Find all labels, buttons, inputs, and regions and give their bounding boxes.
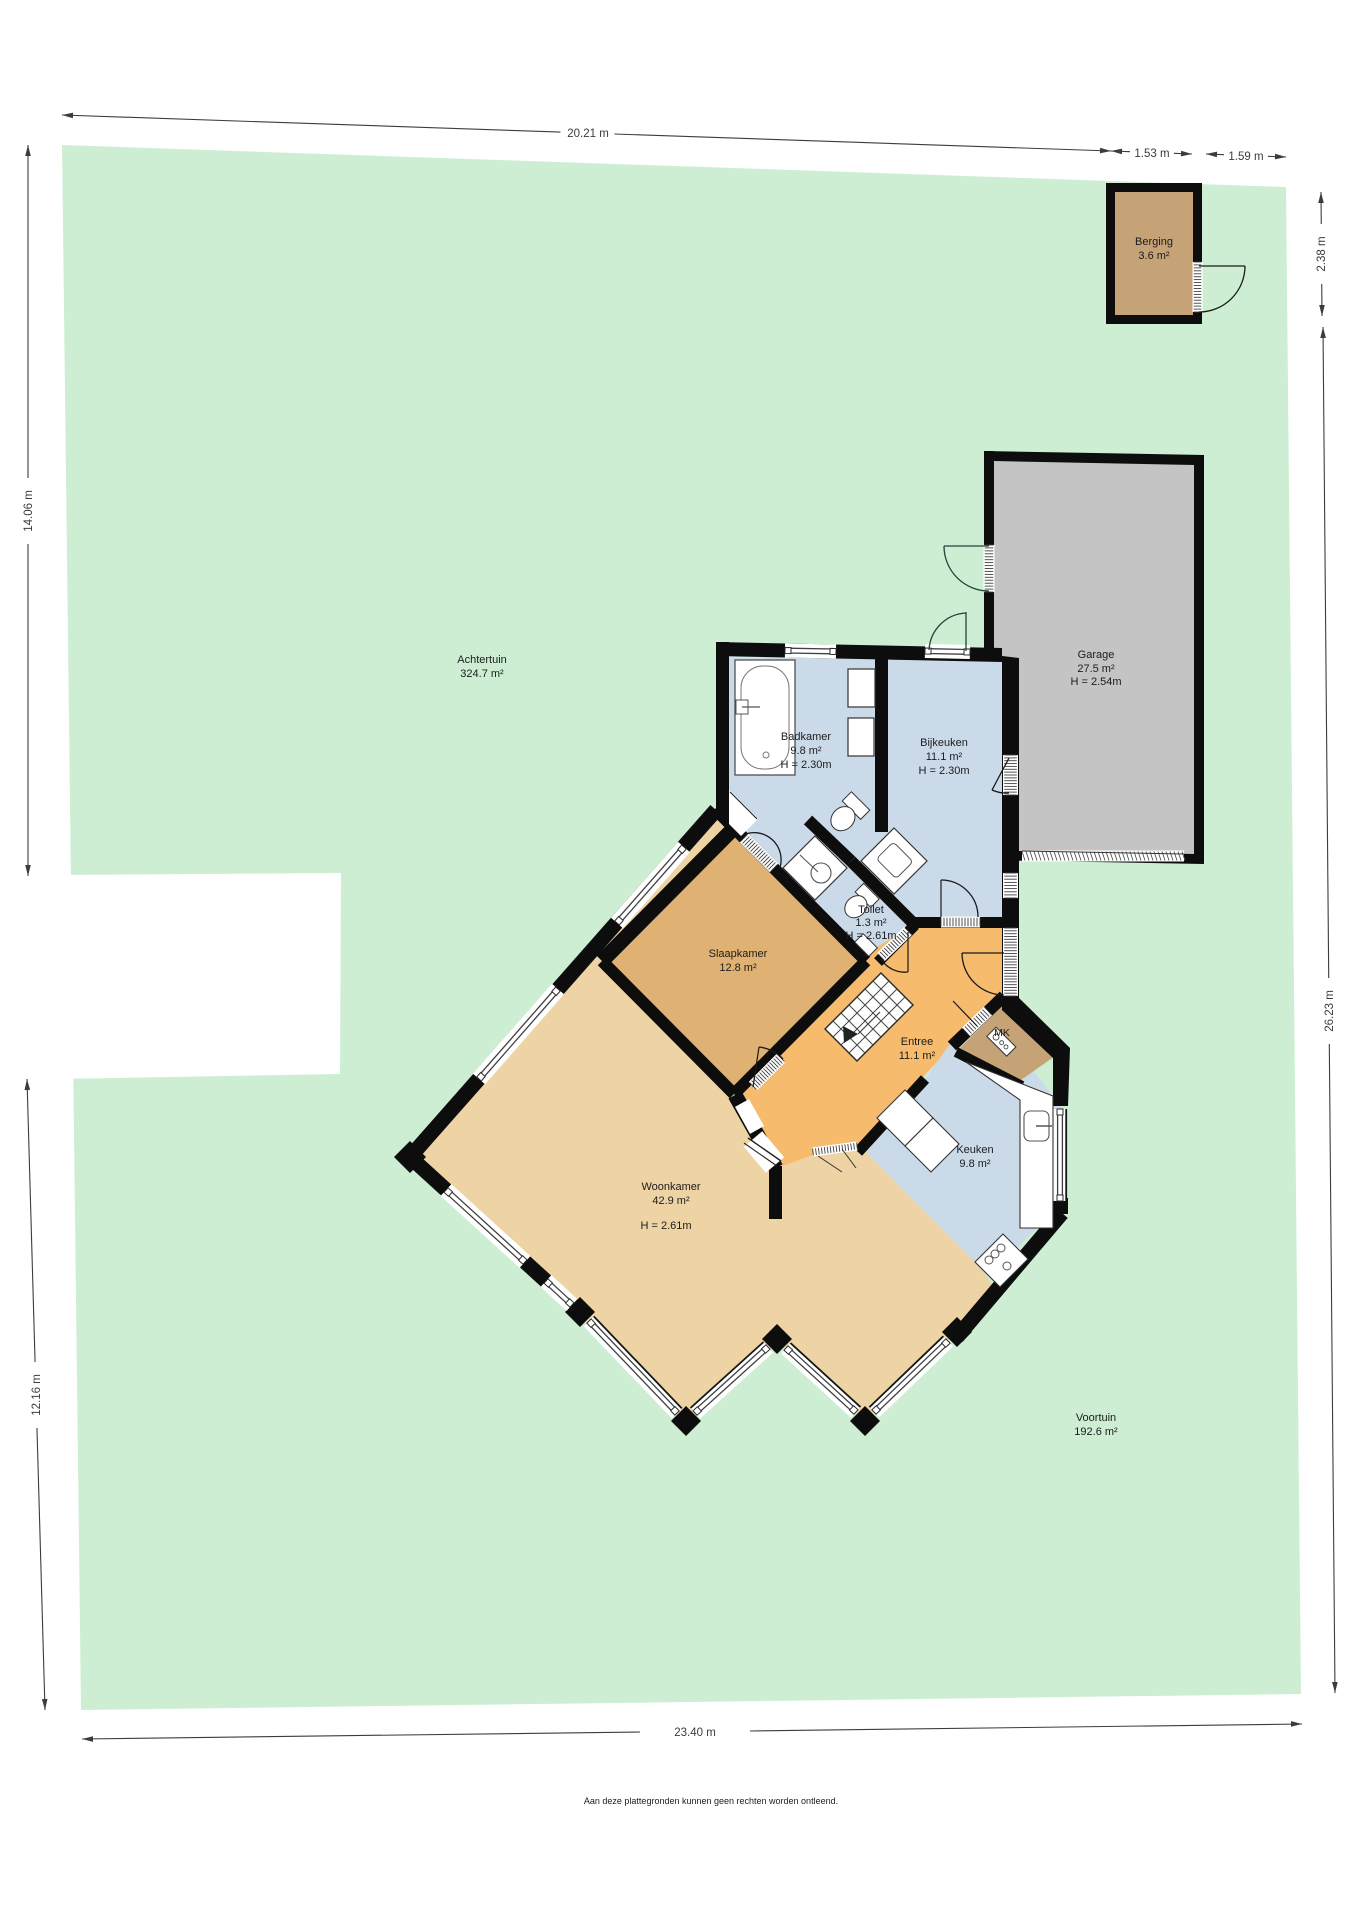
svg-text:9.8 m²: 9.8 m² [790, 745, 822, 757]
svg-text:Voortuin: Voortuin [1076, 1412, 1116, 1424]
svg-text:H = 2.30m: H = 2.30m [780, 759, 831, 771]
svg-text:12.8 m²: 12.8 m² [719, 962, 757, 974]
svg-text:H = 2.61m: H = 2.61m [845, 930, 896, 942]
svg-text:Badkamer: Badkamer [781, 731, 831, 743]
svg-text:27.5 m²: 27.5 m² [1077, 663, 1115, 675]
svg-text:Slaapkamer: Slaapkamer [709, 948, 768, 960]
svg-text:Garage: Garage [1078, 649, 1115, 661]
svg-text:Woonkamer: Woonkamer [641, 1181, 700, 1193]
svg-text:11.1 m²: 11.1 m² [899, 1050, 936, 1062]
svg-text:H = 2.30m: H = 2.30m [918, 765, 969, 777]
svg-text:1.53 m: 1.53 m [1134, 148, 1169, 160]
svg-text:Entree: Entree [901, 1036, 933, 1048]
svg-text:Berging: Berging [1135, 236, 1173, 248]
svg-text:3.6 m²: 3.6 m² [1138, 250, 1170, 262]
svg-text:12.16 m: 12.16 m [31, 1374, 43, 1416]
svg-text:20.21 m: 20.21 m [567, 128, 609, 140]
svg-text:14.06 m: 14.06 m [23, 490, 35, 532]
svg-text:324.7 m²: 324.7 m² [460, 668, 504, 680]
svg-text:Keuken: Keuken [956, 1144, 993, 1156]
svg-text:1.59 m: 1.59 m [1228, 151, 1263, 163]
svg-text:1.3 m²: 1.3 m² [855, 917, 887, 929]
svg-text:Achtertuin: Achtertuin [457, 654, 507, 666]
svg-text:42.9 m²: 42.9 m² [652, 1195, 690, 1207]
svg-text:11.1 m²: 11.1 m² [926, 751, 963, 763]
svg-text:Aan deze plattegronden kunnen: Aan deze plattegronden kunnen geen recht… [584, 1796, 838, 1806]
svg-text:26.23 m: 26.23 m [1324, 990, 1336, 1032]
svg-text:H = 2.54m: H = 2.54m [1070, 676, 1121, 688]
svg-text:Toilet: Toilet [858, 904, 884, 916]
svg-text:23.40 m: 23.40 m [674, 1727, 716, 1739]
svg-text:MK: MK [994, 1027, 1010, 1039]
svg-text:Bijkeuken: Bijkeuken [920, 737, 968, 749]
svg-text:9.8 m²: 9.8 m² [959, 1158, 991, 1170]
svg-text:2.38 m: 2.38 m [1316, 236, 1328, 271]
svg-text:H = 2.61m: H = 2.61m [640, 1220, 691, 1232]
svg-text:192.6 m²: 192.6 m² [1074, 1426, 1118, 1438]
